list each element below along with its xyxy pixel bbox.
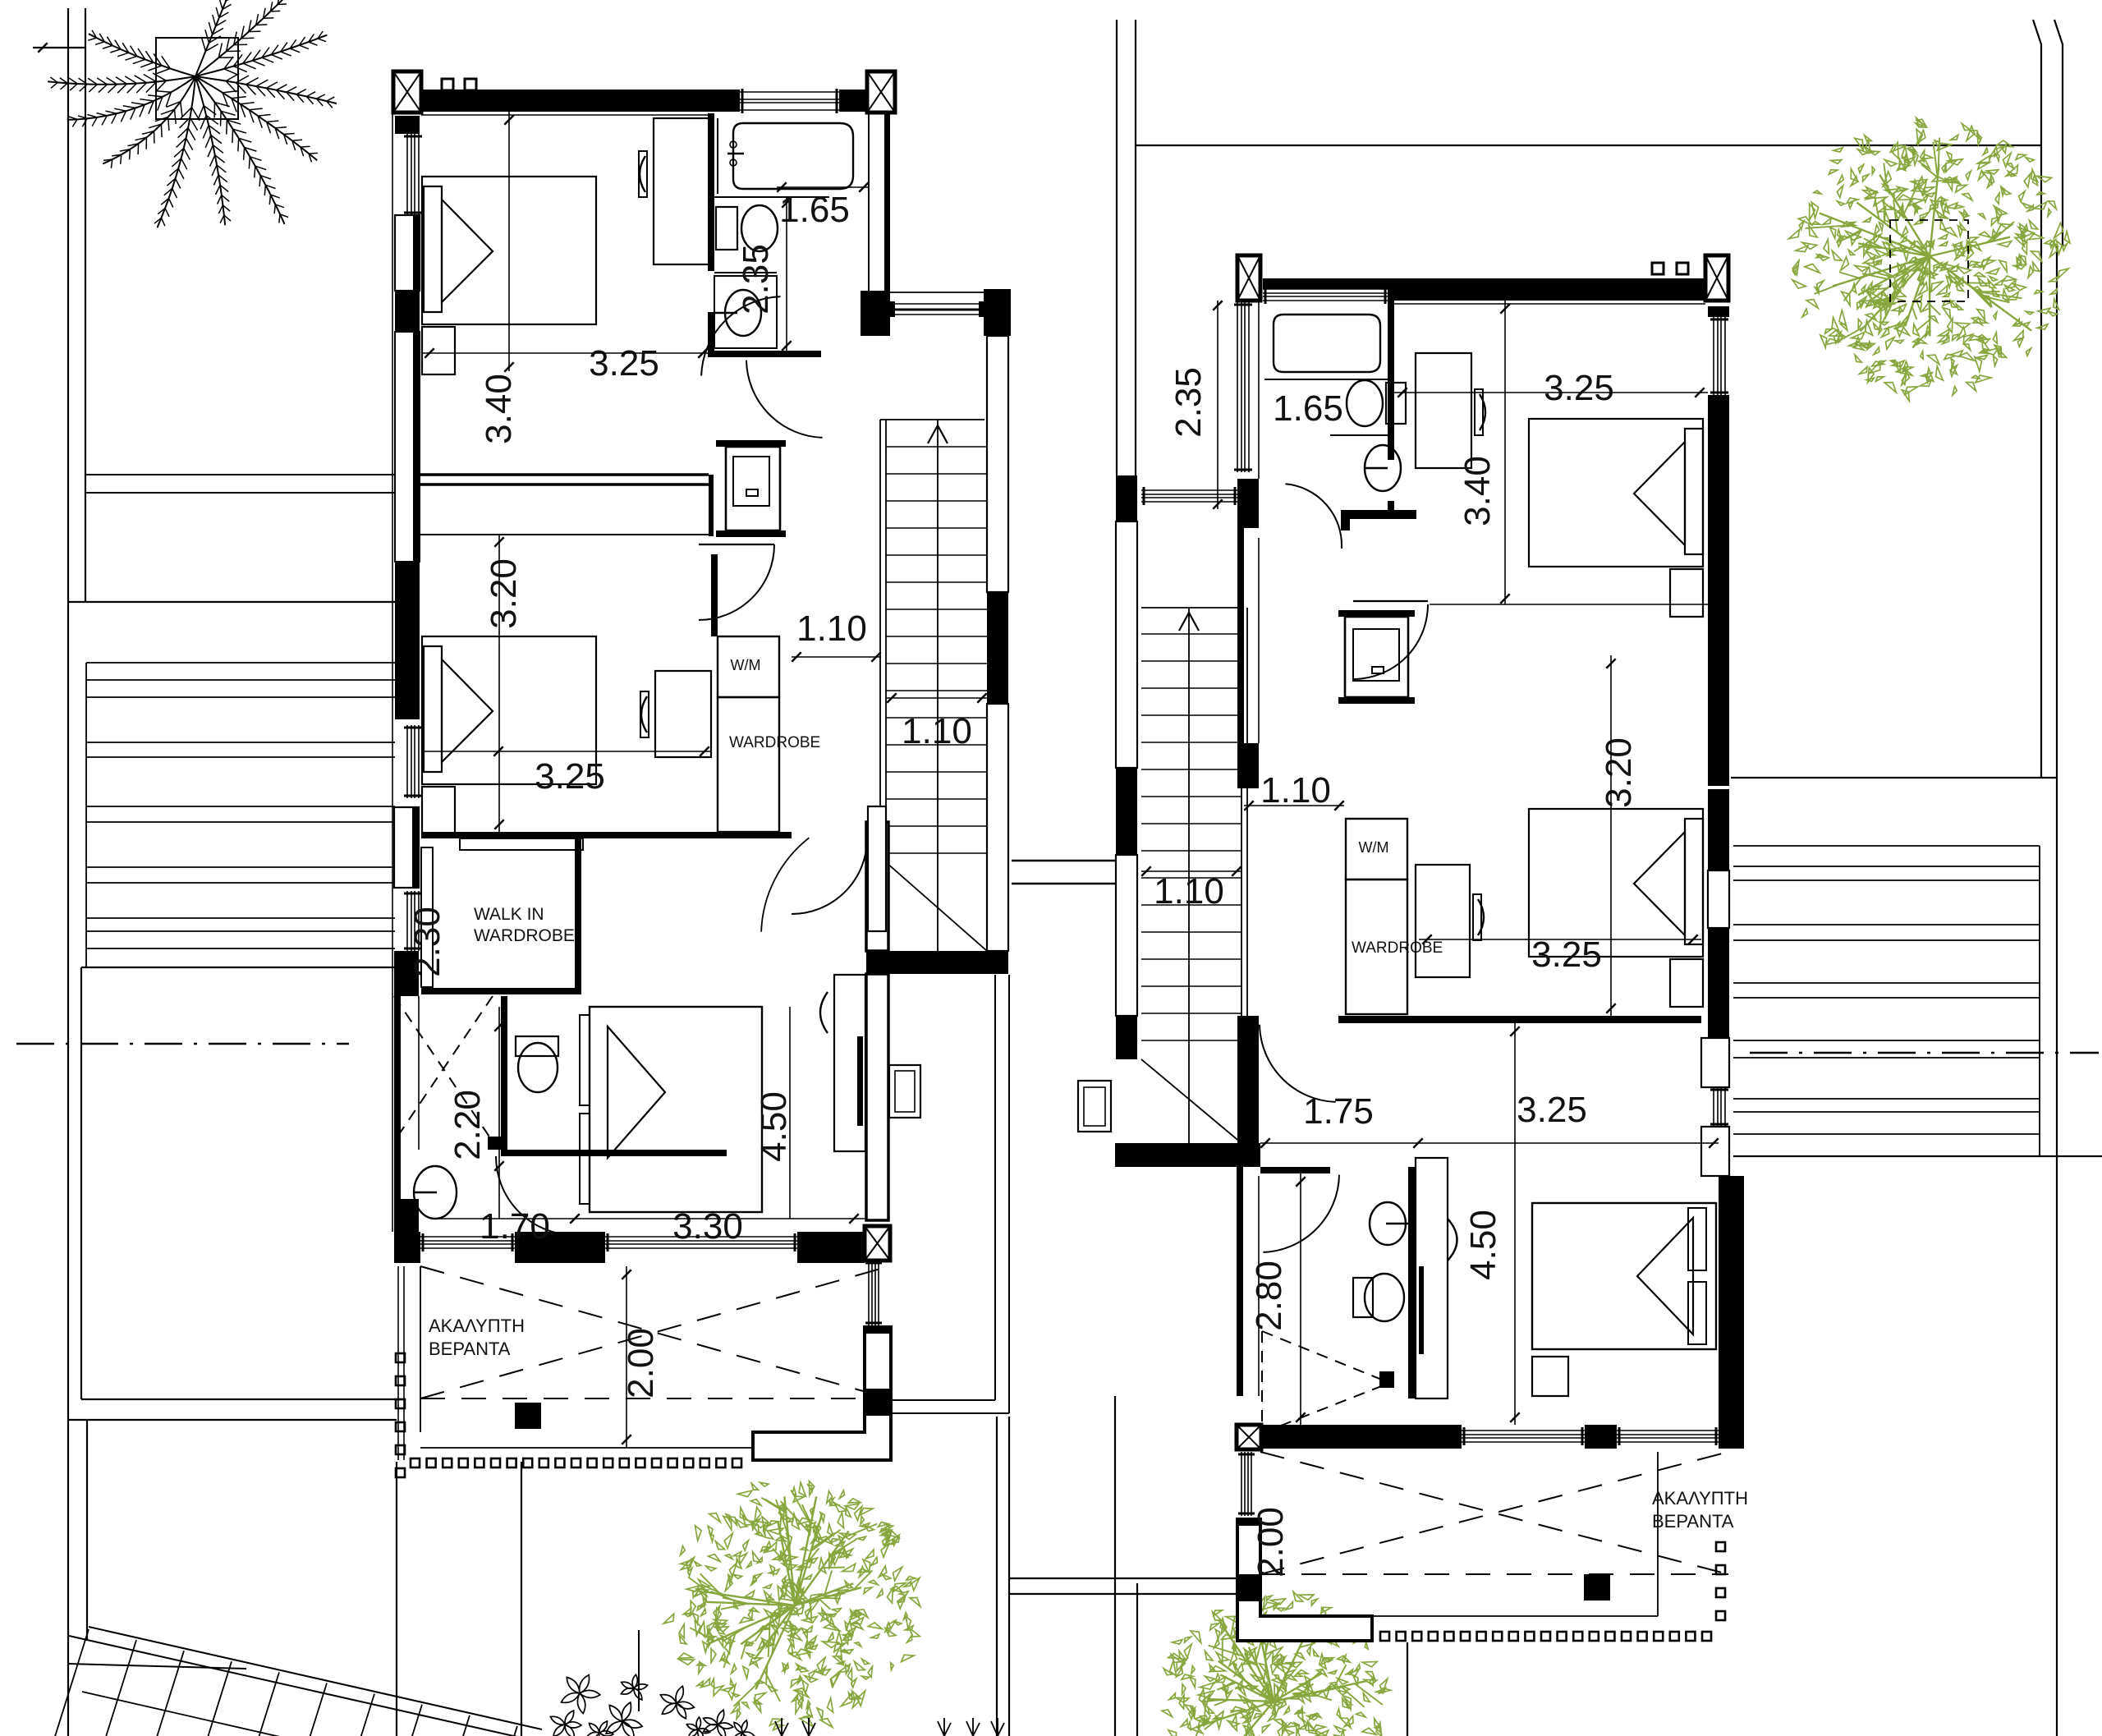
svg-text:ΒΕΡΑΝΤΑ: ΒΕΡΑΝΤΑ [1652, 1511, 1734, 1532]
svg-text:2.35: 2.35 [1168, 367, 1209, 438]
svg-text:W/M: W/M [1359, 839, 1389, 856]
svg-text:4.50: 4.50 [754, 1091, 794, 1162]
svg-text:3.20: 3.20 [484, 558, 524, 629]
svg-text:1.10: 1.10 [902, 711, 972, 751]
svg-text:1.10: 1.10 [796, 609, 867, 649]
svg-text:ΑΚΑΛΥΠΤΗ: ΑΚΑΛΥΠΤΗ [429, 1316, 525, 1336]
svg-text:WARDROBE: WARDROBE [474, 926, 575, 945]
svg-text:1.65: 1.65 [779, 190, 850, 230]
svg-text:2.20: 2.20 [447, 1090, 488, 1160]
svg-text:2.35: 2.35 [736, 244, 776, 315]
svg-text:2.80: 2.80 [1249, 1261, 1289, 1331]
svg-text:3.40: 3.40 [479, 374, 519, 444]
svg-text:1.75: 1.75 [1303, 1091, 1374, 1132]
svg-text:ΒΕΡΑΝΤΑ: ΒΕΡΑΝΤΑ [429, 1339, 511, 1359]
svg-text:3.25: 3.25 [1544, 368, 1614, 408]
svg-text:2.30: 2.30 [407, 907, 447, 977]
svg-text:3.25: 3.25 [589, 343, 659, 383]
svg-text:3.25: 3.25 [1531, 935, 1602, 975]
svg-text:ΑΚΑΛΥΠΤΗ: ΑΚΑΛΥΠΤΗ [1652, 1488, 1748, 1509]
svg-text:3.25: 3.25 [535, 756, 605, 797]
svg-text:3.30: 3.30 [672, 1206, 743, 1247]
svg-text:3.40: 3.40 [1457, 456, 1498, 526]
svg-text:WALK IN: WALK IN [474, 905, 544, 924]
svg-text:WARDROBE: WARDROBE [729, 734, 820, 751]
svg-text:1.10: 1.10 [1154, 871, 1224, 912]
svg-text:2.00: 2.00 [1251, 1507, 1291, 1578]
svg-text:4.50: 4.50 [1463, 1210, 1503, 1280]
svg-text:WARDROBE: WARDROBE [1352, 939, 1443, 957]
svg-text:W/M: W/M [731, 657, 761, 673]
svg-text:1.65: 1.65 [1273, 388, 1343, 429]
svg-text:1.70: 1.70 [480, 1206, 550, 1247]
svg-text:3.25: 3.25 [1517, 1090, 1587, 1130]
svg-text:3.20: 3.20 [1599, 737, 1639, 808]
svg-text:1.10: 1.10 [1260, 770, 1331, 811]
